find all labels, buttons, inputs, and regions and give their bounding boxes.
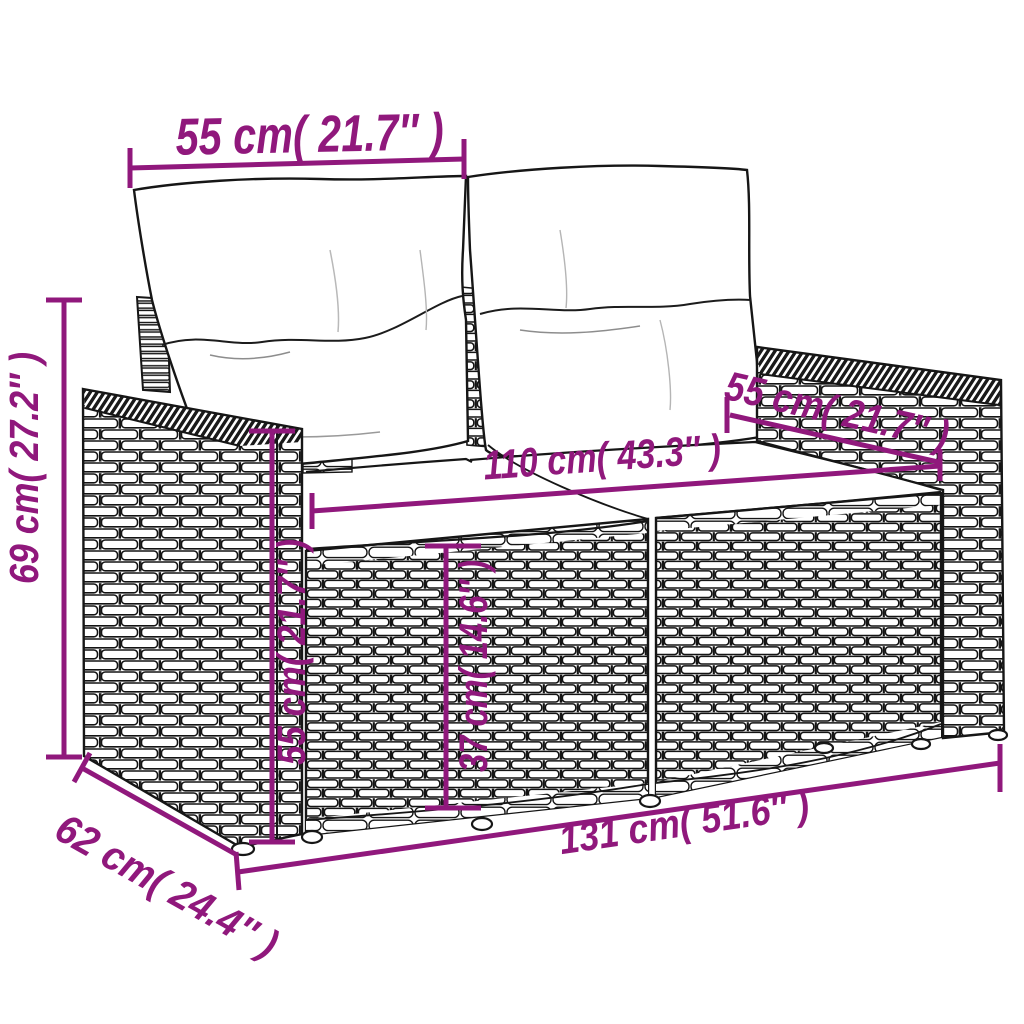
svg-text:69 cm( 27.2″ ): 69 cm( 27.2″ ) — [1, 352, 47, 584]
svg-text:55 cm( 21.7″ ): 55 cm( 21.7″ ) — [175, 103, 444, 167]
svg-text:55 cm( 21.7″ ): 55 cm( 21.7″ ) — [270, 539, 314, 765]
svg-text:37 cm( 14.6″ ): 37 cm( 14.6″ ) — [452, 560, 496, 772]
